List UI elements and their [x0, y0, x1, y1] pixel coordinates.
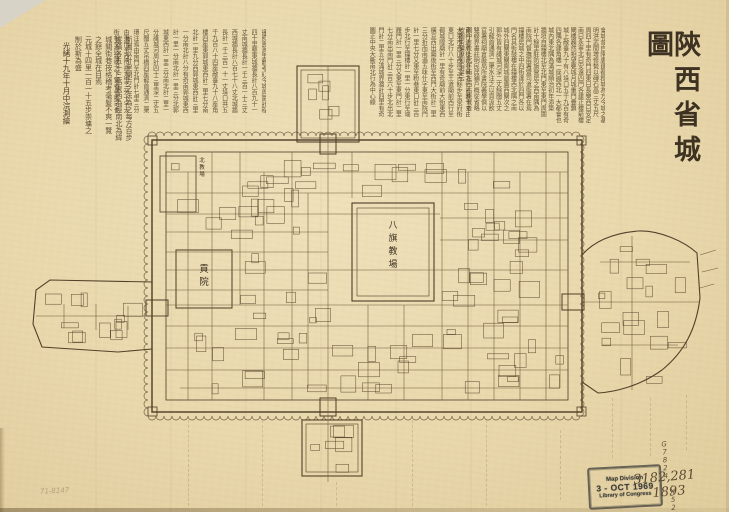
text-column: 城內東北隅為滿城順治初年添築: [546, 27, 552, 154]
text-column: 計十餘里駐防旗營居之西南隅為: [532, 27, 538, 154]
text-column: 門名其街鼓樓在鐘樓西北隅之南: [509, 27, 515, 154]
text-column: 南行過牌樓西巷轉北行計數十丈由: [464, 27, 470, 155]
crease-line: [95, 0, 97, 512]
text-column: 城東西計一里三分南北計二里一: [161, 29, 167, 146]
text-column: 四十里整東城牆長計八百九十一: [250, 29, 256, 146]
fold-dot-line: [262, 420, 263, 506]
text-column: 尺闊五丈吊橋四座龍首通濟二渠: [142, 29, 148, 146]
text-column: 計一里七分又東至粉巷東口計三百: [411, 27, 417, 155]
examination-hall-label: 貢院: [199, 264, 209, 288]
map-title: 陝西省城圖: [656, 30, 698, 186]
crease-line: [320, 0, 322, 512]
text-column: 郭外皆有護城河深二丈餘闊五丈: [494, 27, 500, 154]
text-column: 官署祠廟倉廒局所書院義學俱以: [479, 27, 485, 154]
east-gate: [562, 294, 584, 310]
text-column: 閘樓巍然相望甕城月城重門疊鎖: [569, 27, 575, 154]
annotation-block-left: 謹照實測里數考訂今城周圍計程四十里整東城牆長計八百九十一丈南城牆長計一千三百一十…: [112, 29, 266, 146]
text-column: 橫亘西出廟後街至西門大街計二里: [429, 27, 435, 155]
text-column: 明洪武間增修甃以磚石高三丈五尺: [591, 27, 597, 154]
text-column: 城關街巷按格稽考毫髮不爽一覽: [104, 36, 111, 204]
text-column: 縱橫各五十三格東西為經南北為緯: [115, 36, 122, 204]
text-column: 南曰永寧北曰安遠四門各建正樓箭樓: [576, 27, 582, 154]
text-column: 三分折而南過五味什字東至南院門: [420, 27, 426, 155]
text-column: 圖正中央大衢南北行為中心線: [368, 27, 374, 155]
text-column: 西城牆長計八百七十八丈北城牆: [230, 29, 236, 146]
scan-edge-shadow-left: [0, 428, 5, 512]
fold-dot-line: [686, 395, 687, 450]
colophon-date: 光緒十九年十月中浣測繪: [58, 42, 70, 202]
crease-line: [395, 0, 397, 512]
crease-line: [170, 0, 172, 512]
annotation-block-middle: 南行過牌樓西巷轉北行計數十丈由大菜市西口西行三百餘步至梁府街東口北行八十步至王道…: [368, 27, 470, 155]
fold-dot-line: [188, 420, 189, 506]
fold-dot-line: [650, 398, 651, 456]
text-column: 鐘樓居城之中四街達於四門各以: [517, 27, 523, 154]
crease-line: [620, 0, 622, 512]
text-column: 分護城河周計四十三里深二丈五: [151, 29, 157, 146]
text-column: 謹照實測里數考訂今城周圍計程: [260, 29, 266, 146]
text-column: 制於斯為盛: [74, 36, 81, 204]
fold-dot-line: [336, 482, 337, 506]
map-labels: 八旗教場 貢院 北教場: [199, 156, 397, 288]
fold-dot-line: [486, 420, 487, 506]
text-column: 一分南北計八分有奇南郭城東西: [181, 29, 187, 146]
text-column: 北計一里九分西郭城東西計三里: [191, 29, 197, 146]
text-column: 引龍首通濟二渠水注之以資汲飲: [487, 27, 493, 154]
text-column: 元城十四里一百一十五步崇墉之: [84, 36, 91, 204]
text-column: 長計一千三百一十一丈垛口共五: [220, 29, 226, 146]
crease-line: [545, 0, 547, 512]
text-column: 四隅各建角樓一座誠西北一大都會也: [554, 27, 560, 154]
text-column: 環注焉由南門至北門計七里三分: [132, 29, 138, 146]
text-column: 斯圖以計里開方之法為之每方百步: [125, 36, 132, 204]
crease-line: [470, 0, 472, 512]
text-column: 南院門督撫兩署暨司道衙署在焉: [524, 27, 530, 154]
fold-dot-line: [560, 430, 561, 500]
text-column: 城外四關東關廓城最廣西關次之: [502, 27, 508, 154]
text-column: 東口北行八十步至王道廟前西行至: [446, 27, 452, 155]
pencil-note: 71-8147: [40, 486, 70, 496]
text-column: 會城昔自隋唐建都郡城為方今城之基: [599, 27, 605, 154]
annotation-block-right: 會城昔自隋唐建都郡城為方今城之基明洪武間增修甃以磚石高三丈五尺周四十里有奇門四東…: [457, 27, 605, 154]
annotation-block-far-left: 斯圖以計里開方之法為之每方百步縱橫各五十三格東西為經南北為緯城關街巷按格稽考毫髮…: [74, 36, 132, 204]
text-column: 七分南出南門計三百六十步北出北: [385, 27, 391, 155]
west-gate: [146, 300, 168, 316]
accession-number: 3182,281 1893: [633, 468, 697, 503]
text-column: 步北行至鐘樓計一里一分東行至端: [403, 27, 409, 155]
fold-dot-line: [412, 420, 413, 506]
text-column: 門計二里五分滿城界牆計四里有奇: [377, 27, 383, 155]
text-column: 樓四座東郭城東西計二里七分南: [201, 29, 207, 146]
text-column: 千九百八十四座敵臺九十八座角: [210, 29, 216, 146]
north-drill-ground-label: 北教場: [199, 156, 205, 178]
text-column: 周四十里有奇門四東曰長樂西曰安定: [584, 27, 590, 154]
fold-dot-line: [612, 398, 613, 458]
crease-line: [245, 0, 247, 512]
text-column: 大菜市西口西行三百餘步至梁府街: [455, 27, 461, 155]
text-column: 都城隍廟計一里有奇廟前大街東西: [438, 27, 444, 155]
text-column: 雙線界畫註明民居鋪戶概從省略: [472, 27, 478, 154]
text-column: 計一里一分南北計一里三分北郭: [171, 29, 177, 146]
scanned-map-sheet: 八旗教場 貢院 北教場 陝西省城圖 會城昔自隋唐建都郡城為方今城之基明洪武間增修…: [0, 0, 729, 512]
text-column: 城上敵臺九十有八垛口五千九百有奇: [561, 27, 567, 154]
